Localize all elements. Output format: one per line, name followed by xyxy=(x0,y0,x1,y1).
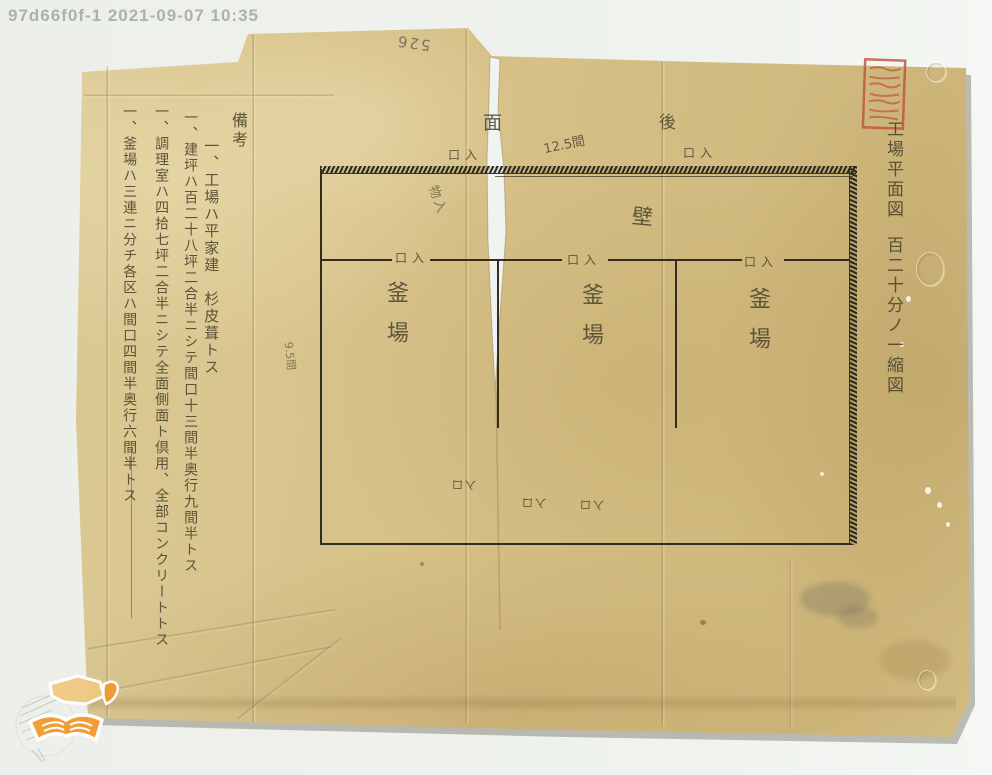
room-label-kamaba: 釜場 xyxy=(741,287,773,367)
embossed-mark xyxy=(918,670,936,690)
plan-wall-top-inner-line xyxy=(495,176,853,177)
paper-damage xyxy=(906,296,911,302)
paper-damage xyxy=(946,522,950,527)
notes-header: 備考 xyxy=(226,112,250,150)
plan-partition-segment xyxy=(784,259,850,261)
scale-note: 百二十分ノ一縮図 xyxy=(883,236,903,396)
stain-dot xyxy=(700,620,706,625)
room-label-kamaba: 釜場 xyxy=(379,281,411,361)
scanned-document-page: 97d66f0f-1 2021-09-07 10:35 526 工場平面図百二十… xyxy=(0,0,992,768)
logo-open-book xyxy=(30,715,102,740)
embossed-mark xyxy=(916,252,944,286)
room-label-kamaba: 釜場 xyxy=(574,283,606,363)
rear-label: 後 xyxy=(659,108,676,133)
fold-shadow xyxy=(86,694,956,712)
plan-wall-left xyxy=(320,169,322,545)
archive-logo xyxy=(12,670,124,764)
plan-wall-bottom xyxy=(320,543,851,545)
note-item: 一、調理室ハ四拾七坪二合半ニシテ全面側面ト倶用、全部コンクリートトス xyxy=(153,104,169,574)
note-item: 一、工場ハ平家建 杉皮葺トス xyxy=(202,138,219,378)
document-title-column: 工場平面図百二十分ノ一縮図 xyxy=(884,120,901,680)
embossed-mark xyxy=(926,62,946,82)
entrance-mark: 口入 xyxy=(567,251,601,268)
fold-crease xyxy=(106,66,110,718)
entrance-mark: 口入 xyxy=(448,146,482,163)
entrance-mark: 口入 xyxy=(395,249,429,266)
entrance-mark: 口入 xyxy=(683,144,717,161)
plan-wall-top xyxy=(320,166,856,174)
entrance-mark-flipped: 入口 xyxy=(520,495,547,512)
plan-partition-segment xyxy=(430,259,562,261)
plan-partition-vertical xyxy=(675,261,677,428)
note-item: 一、建坪ハ百二十八坪二合半ニシテ間口十三間半奥行九間半トス xyxy=(182,110,198,530)
paper-damage xyxy=(925,487,931,494)
fold-crease xyxy=(84,94,334,98)
entrance-mark-flipped: 入口 xyxy=(578,497,605,514)
logo-map-shape xyxy=(50,676,104,704)
paper-damage xyxy=(937,502,942,508)
document-title: 工場平面図 xyxy=(883,120,903,220)
entrance-mark: 口入 xyxy=(744,253,778,270)
ink-trail-line xyxy=(131,448,132,618)
pencil-smudge xyxy=(838,606,878,628)
note-item: 一、釜場ハ三連ニ分チ各区ハ間口四間半奥行六間半トス xyxy=(121,104,137,504)
face-label: 面 xyxy=(483,108,502,135)
logo-swoosh xyxy=(103,682,118,704)
dimension-left-depth: 9.5間 xyxy=(281,341,300,371)
scan-timestamp: 97d66f0f-1 2021-09-07 10:35 xyxy=(8,6,259,26)
wall-label: 壁 xyxy=(631,200,655,232)
plan-partition-segment xyxy=(320,259,392,261)
entrance-mark-flipped: 入口 xyxy=(450,477,477,494)
plan-partition-vertical xyxy=(497,261,499,428)
plan-wall-right xyxy=(849,166,857,545)
stain-dot xyxy=(420,562,424,566)
fold-crease xyxy=(252,34,256,722)
